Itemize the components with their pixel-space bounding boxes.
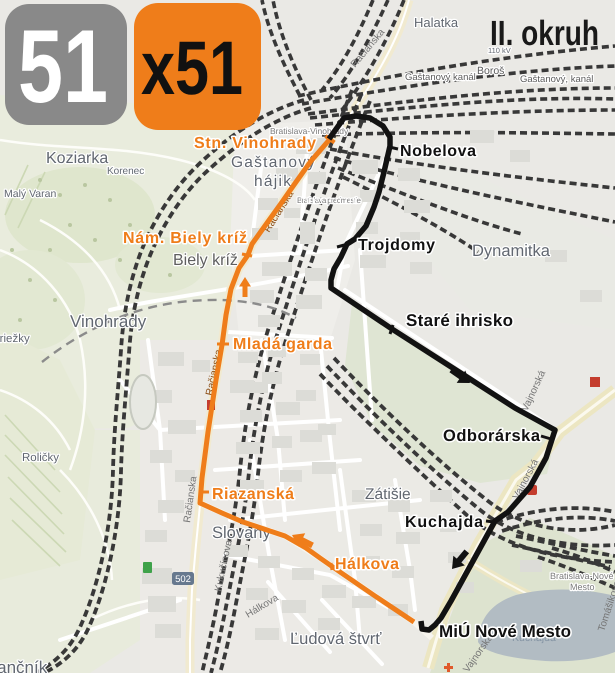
- svg-text:II. okruh: II. okruh: [490, 14, 599, 53]
- svg-text:Korenec: Korenec: [107, 166, 144, 177]
- svg-text:Bratislava predmestie: Bratislava predmestie: [297, 196, 362, 205]
- svg-text:Nobelova: Nobelova: [400, 143, 476, 160]
- svg-text:MiÚ Nové Mesto: MiÚ Nové Mesto: [439, 621, 571, 641]
- svg-text:Biely kríž: Biely kríž: [173, 252, 238, 269]
- svg-text:x51: x51: [141, 26, 243, 111]
- svg-text:Riazanská: Riazanská: [212, 486, 294, 503]
- svg-text:502: 502: [175, 574, 191, 585]
- svg-text:Slančník: Slančník: [0, 658, 48, 673]
- svg-text:Vinohrady: Vinohrady: [70, 312, 147, 331]
- svg-text:Boroš: Boroš: [477, 65, 504, 77]
- svg-text:Gaštanový, kanál: Gaštanový, kanál: [520, 74, 593, 85]
- svg-text:Roličky: Roličky: [22, 452, 59, 464]
- svg-text:Halatka: Halatka: [414, 15, 459, 30]
- svg-text:Koziarka: Koziarka: [46, 150, 108, 167]
- svg-text:Stn. Vinohrady: Stn. Vinohrady: [194, 135, 316, 152]
- svg-text:Kuchajda: Kuchajda: [405, 514, 483, 531]
- svg-text:Nám. Biely kríž: Nám. Biely kríž: [123, 230, 247, 247]
- svg-text:Odborárska: Odborárska: [443, 427, 541, 445]
- svg-text:Staré ihrisko: Staré ihrisko: [406, 311, 513, 330]
- svg-text:Gaštanový kanál: Gaštanový kanál: [405, 72, 476, 83]
- svg-text:Hálkova: Hálkova: [335, 556, 399, 573]
- svg-text:Zátišie: Zátišie: [365, 486, 411, 503]
- svg-text:Trojdomy: Trojdomy: [358, 237, 435, 254]
- svg-text:Ľudová štvrť: Ľudová štvrť: [290, 630, 382, 648]
- svg-text:Briežky: Briežky: [0, 333, 30, 345]
- svg-text:Dynamitka: Dynamitka: [472, 242, 551, 260]
- svg-text:Malý Varan: Malý Varan: [4, 188, 56, 200]
- svg-text:Mesto: Mesto: [570, 582, 595, 592]
- svg-text:Bratislava-Nové: Bratislava-Nové: [550, 571, 614, 581]
- svg-text:Mladá garda: Mladá garda: [233, 336, 332, 353]
- svg-text:51: 51: [18, 9, 108, 125]
